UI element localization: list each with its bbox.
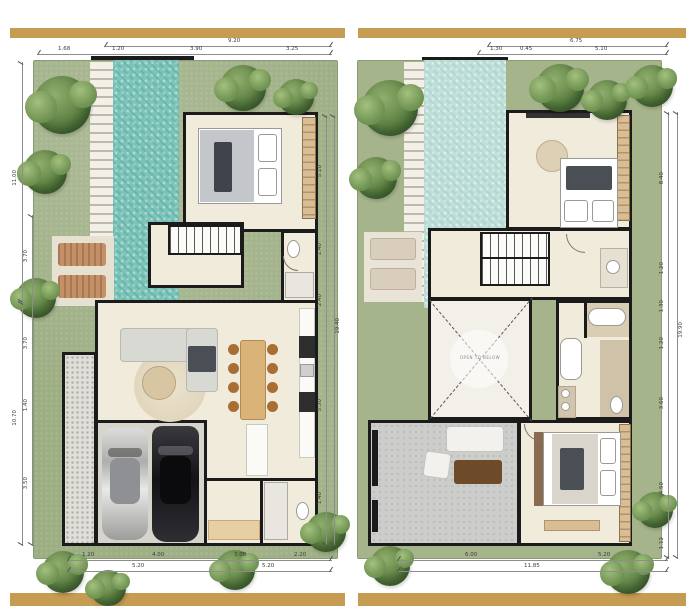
dim-label: 1.20 xyxy=(82,553,94,559)
tree xyxy=(220,65,266,111)
tree xyxy=(42,551,84,593)
shower-pan xyxy=(264,482,288,540)
bathtub xyxy=(588,308,626,326)
dim-label: 5.10 xyxy=(595,47,607,53)
dim-line xyxy=(478,54,668,55)
planter xyxy=(372,430,378,486)
bed-headboard xyxy=(534,432,543,506)
gold-bar-top-left xyxy=(10,28,345,38)
dining-table xyxy=(240,340,266,420)
dim-label: 5.20 xyxy=(132,564,144,570)
dim-label: 11.00 xyxy=(13,170,19,186)
tree xyxy=(536,64,584,112)
outdoor-armchair xyxy=(422,450,451,479)
dim-line xyxy=(32,215,33,545)
sink xyxy=(300,364,314,377)
dim-label: 1.40 xyxy=(24,399,30,411)
dim-label: 3.70 xyxy=(24,250,30,262)
entry-mat xyxy=(208,520,260,540)
tree xyxy=(362,80,418,136)
shower xyxy=(285,272,314,298)
dining-chair xyxy=(228,344,239,355)
stair-landing-divider xyxy=(482,257,548,259)
pillow xyxy=(600,470,616,496)
tree xyxy=(278,79,314,115)
bed-throw xyxy=(560,448,584,490)
dim-line xyxy=(68,560,332,561)
dim-label: 1.12 xyxy=(660,537,666,549)
tree xyxy=(23,150,67,194)
staircase-upper xyxy=(480,232,550,286)
toilet xyxy=(610,396,623,414)
dim-label: 3.60 xyxy=(660,397,666,409)
tree xyxy=(33,76,91,134)
pillow xyxy=(258,168,277,196)
car-silver-roof xyxy=(110,458,140,504)
dim-label: 3.70 xyxy=(24,337,30,349)
dining-chair xyxy=(267,382,278,393)
dim-label: 5.10 xyxy=(318,165,324,177)
kitchen-counter xyxy=(299,308,315,458)
sun-lounger xyxy=(58,275,106,298)
dim-label: 19.40 xyxy=(336,318,342,334)
dim-label: 6.00 xyxy=(465,553,477,559)
sofa-throw xyxy=(188,346,216,372)
dining-chair xyxy=(267,401,278,412)
dim-label: 19.90 xyxy=(679,322,685,338)
gold-bar-bottom-left xyxy=(10,593,345,606)
dining-chair xyxy=(228,363,239,374)
basin xyxy=(561,402,570,411)
dim-line xyxy=(668,112,669,558)
wardrobe xyxy=(617,115,630,221)
tree xyxy=(587,80,627,120)
dim-label: 3.50 xyxy=(24,477,30,489)
outdoor-sofa xyxy=(446,426,504,452)
dim-label: 1.68 xyxy=(58,47,70,53)
dim-label: 5.30 xyxy=(318,399,324,411)
fridge-appliance xyxy=(299,392,315,412)
dim-label: 3.00 xyxy=(234,553,246,559)
dining-chair xyxy=(228,382,239,393)
wardrobe xyxy=(302,117,316,219)
staircase-ground xyxy=(168,225,242,255)
dim-label: 1.40 xyxy=(318,492,324,504)
storage-utility xyxy=(62,352,97,546)
dim-label: 9.20 xyxy=(228,39,240,45)
sun-lounger xyxy=(370,268,416,290)
dim-label: 3.25 xyxy=(286,47,298,53)
dim-label: 11.85 xyxy=(524,564,540,570)
planter xyxy=(372,500,378,532)
dim-label: 5.20 xyxy=(598,553,610,559)
dim-label: 6.75 xyxy=(570,39,582,45)
dim-label: 2.20 xyxy=(294,553,306,559)
dim-label: 4.50 xyxy=(660,482,666,494)
dining-chair xyxy=(267,363,278,374)
dim-label: 3.90 xyxy=(190,47,202,53)
dim-label: 1.20 xyxy=(660,262,666,274)
dim-label: 0.45 xyxy=(520,47,532,53)
tree xyxy=(90,570,126,606)
dim-line xyxy=(398,560,668,561)
dim-line xyxy=(38,54,332,55)
dim-line xyxy=(326,115,327,545)
gold-bar-bottom-right xyxy=(358,593,686,606)
dim-line xyxy=(68,571,332,572)
dim-label: 1.30 xyxy=(490,47,502,53)
car-black-windshield xyxy=(158,446,193,455)
pool-coping-wall xyxy=(91,56,194,60)
dining-chair xyxy=(228,401,239,412)
sun-lounger xyxy=(58,243,106,266)
dim-label: 1.40 xyxy=(318,243,324,255)
car-black-roof xyxy=(160,456,191,504)
armchair xyxy=(142,366,176,400)
bathroom-partition xyxy=(584,300,587,338)
dim-label: 5.20 xyxy=(262,564,274,570)
pillow xyxy=(258,134,277,162)
pillow xyxy=(564,200,588,222)
bed-throw xyxy=(214,142,232,192)
outdoor-coffee-table xyxy=(454,460,502,484)
tree xyxy=(631,65,673,107)
dining-chair xyxy=(267,344,278,355)
toilet xyxy=(296,502,309,520)
car-silver-windshield xyxy=(108,448,142,457)
pool-coping-wall xyxy=(422,57,508,60)
void-label: OPEN TO BELOW xyxy=(436,355,524,360)
oven-appliance xyxy=(299,336,315,358)
tree xyxy=(606,550,650,594)
tv-console xyxy=(526,113,590,118)
basin xyxy=(606,260,620,274)
dim-line xyxy=(398,571,668,572)
bed-throw xyxy=(566,166,612,190)
bench xyxy=(544,520,600,531)
dim-label: 2.40 xyxy=(318,294,324,306)
dim-label: 1.20 xyxy=(660,337,666,349)
tree xyxy=(370,546,410,586)
gold-bar-top-right xyxy=(358,28,686,38)
pillow xyxy=(592,200,614,222)
dim-label: 4.00 xyxy=(152,553,164,559)
bathtub xyxy=(560,338,582,380)
pillow xyxy=(600,438,616,464)
sun-lounger xyxy=(370,238,416,260)
dim-label: 1.20 xyxy=(112,47,124,53)
tree xyxy=(355,157,397,199)
dim-label: 8.40 xyxy=(660,172,666,184)
dim-label: 1.30 xyxy=(660,300,666,312)
dim-label: 10.70 xyxy=(13,410,19,426)
dim-line xyxy=(488,46,668,47)
dim-line xyxy=(22,62,23,302)
kitchen-island xyxy=(246,424,268,476)
basin xyxy=(561,389,570,398)
